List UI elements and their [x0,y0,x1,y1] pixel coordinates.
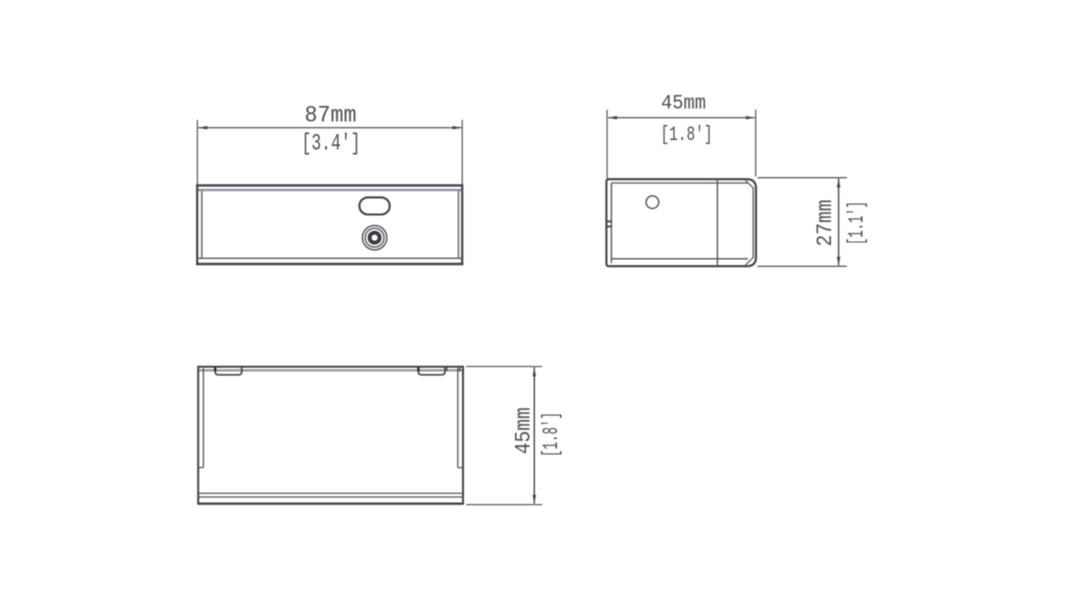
svg-text:[1.8']: [1.8'] [539,412,564,457]
svg-text:[3.4']: [3.4'] [302,131,361,157]
svg-text:45mm: 45mm [512,407,537,454]
svg-text:45mm: 45mm [661,93,706,116]
svg-text:87mm: 87mm [305,102,357,128]
svg-text:27mm: 27mm [813,200,838,247]
svg-text:[1.8']: [1.8'] [661,124,713,147]
svg-text:[1.1']: [1.1'] [845,201,870,245]
